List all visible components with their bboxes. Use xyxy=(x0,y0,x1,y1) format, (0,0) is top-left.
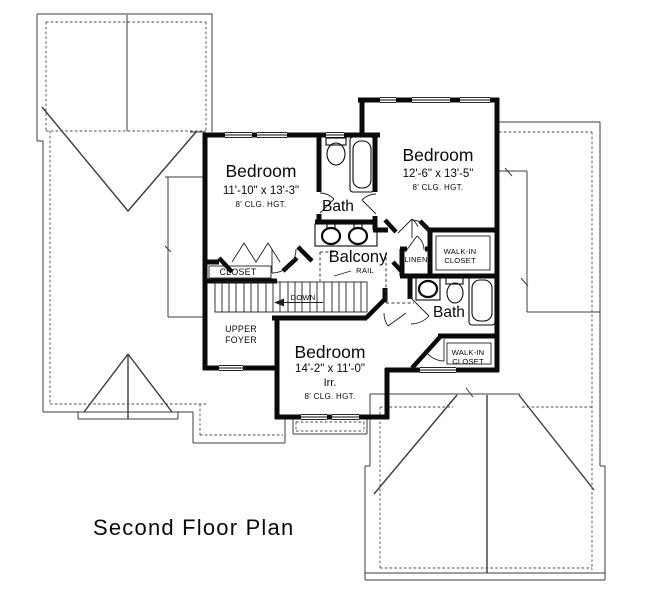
balcony-label: Balcony xyxy=(329,248,388,266)
wic2-label-line1: WALK-IN xyxy=(452,348,485,357)
bath2-door xyxy=(411,298,429,324)
bedroom1-ceiling-height: 8' CLG. HGT. xyxy=(236,200,287,209)
wic1-label-line2: CLOSET xyxy=(444,256,476,265)
bath2-label: Bath xyxy=(433,304,465,321)
bathtub xyxy=(469,276,495,325)
floor-plan-page: Bedroom 11'-10" x 13'-3" 8' CLG. HGT. Ba… xyxy=(0,0,657,600)
bedroom3-dimensions: 14'-2" x 11'-0" xyxy=(295,363,365,375)
rail-leader-line xyxy=(334,271,351,276)
closet-bifold-door xyxy=(232,243,280,262)
bedroom1-door xyxy=(272,249,296,273)
sink-cabinet xyxy=(416,278,440,300)
upper-foyer-label-line2: FOYER xyxy=(225,335,257,345)
toilet xyxy=(326,138,346,165)
window xyxy=(420,367,456,373)
toilet xyxy=(446,278,463,303)
floor-plan-drawing: Bedroom 11'-10" x 13'-3" 8' CLG. HGT. Ba… xyxy=(0,0,657,600)
closet-label: CLOSET xyxy=(220,267,257,277)
bedroom1-dimensions: 11'-10" x 13'-3" xyxy=(223,185,299,197)
room-labels: Bedroom 11'-10" x 13'-3" 8' CLG. HGT. Ba… xyxy=(93,145,484,540)
window xyxy=(380,97,396,103)
bedroom2-ceiling-height: 8' CLG. HGT. xyxy=(413,183,464,192)
bedroom2-dimensions: 12'-6" x 13'-5" xyxy=(403,168,474,180)
down-arrow-head xyxy=(274,299,284,307)
bathtub xyxy=(350,137,374,192)
bedroom3-ceiling-height: 8' CLG. HGT. xyxy=(305,392,356,401)
window xyxy=(412,97,450,103)
sink xyxy=(419,281,437,297)
plan-title: Second Floor Plan xyxy=(93,515,294,540)
bedroom2-label: Bedroom xyxy=(402,145,473,165)
bedroom3-label: Bedroom xyxy=(294,342,365,362)
down-label: DOWN xyxy=(291,293,316,302)
rail-label: RAIL xyxy=(356,266,374,275)
bedroom1-label: Bedroom xyxy=(225,161,296,181)
linen-door xyxy=(406,236,424,251)
roof-dashed-lines xyxy=(46,22,592,570)
bedroom3-door xyxy=(384,313,406,326)
bath1-door-2 xyxy=(362,194,376,214)
window xyxy=(332,414,359,420)
sink xyxy=(349,228,367,244)
window xyxy=(225,132,252,138)
bedroom2-door xyxy=(398,219,418,233)
linen-label: LINEN xyxy=(404,255,427,264)
roof-outline xyxy=(37,14,605,580)
bedroom3-irregular-note: Irr. xyxy=(324,377,337,389)
window xyxy=(326,132,344,138)
sink xyxy=(322,228,340,244)
window xyxy=(460,97,490,103)
window xyxy=(219,365,243,371)
wic2-label-line2: CLOSET xyxy=(452,357,484,366)
upper-foyer-label-line1: UPPER xyxy=(225,324,257,334)
window xyxy=(301,414,327,420)
wic1-door xyxy=(412,220,430,238)
window xyxy=(257,132,287,138)
bath1-label: Bath xyxy=(322,198,354,215)
wic1-label-line1: WALK-IN xyxy=(444,247,477,256)
vanity xyxy=(315,224,377,246)
